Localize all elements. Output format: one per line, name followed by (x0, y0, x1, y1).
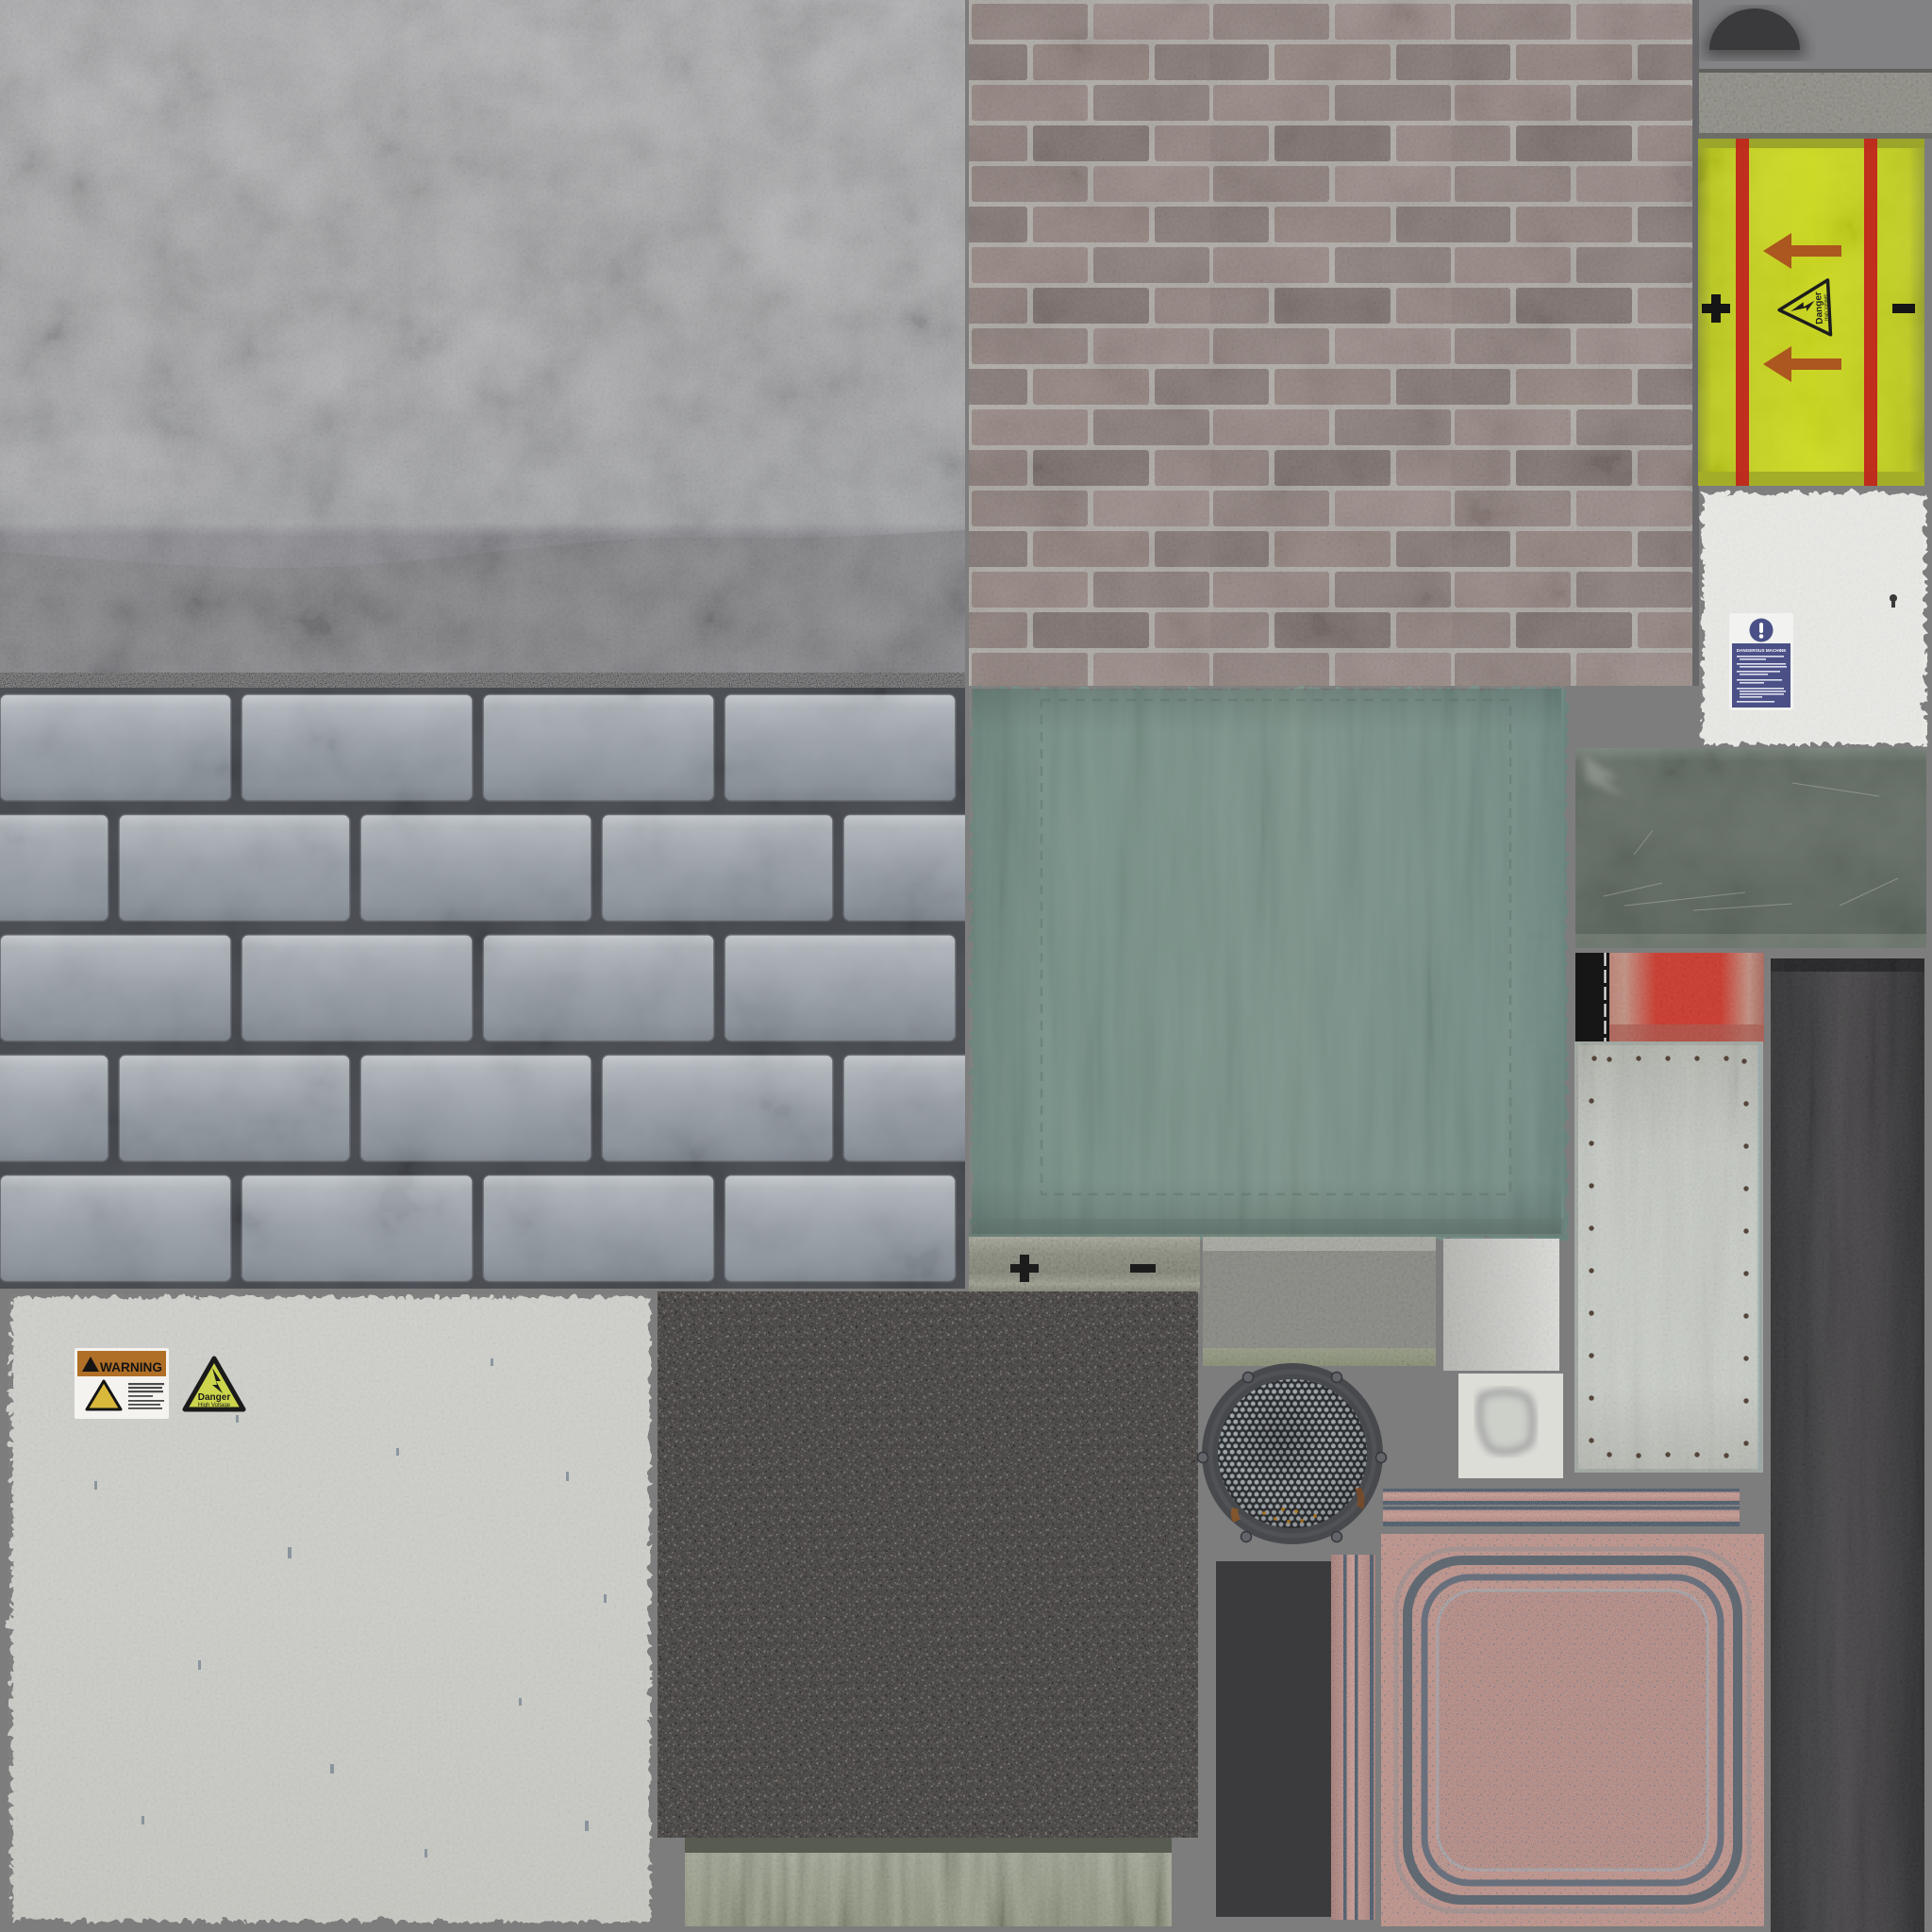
svg-text:Danger: Danger (198, 1392, 231, 1403)
svg-text:DANGEROUS MACHINE: DANGEROUS MACHINE (1737, 648, 1787, 653)
svg-text:WARNING: WARNING (100, 1359, 162, 1374)
svg-text:High Voltage: High Voltage (198, 1403, 231, 1408)
